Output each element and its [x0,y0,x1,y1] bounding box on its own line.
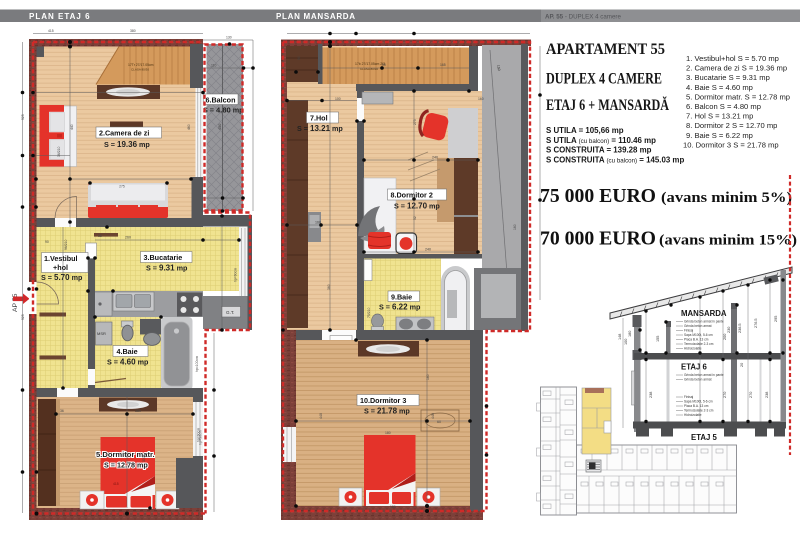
svg-text:52: 52 [413,216,417,220]
svg-text:360: 360 [327,284,331,290]
svg-text:525: 525 [21,314,25,320]
svg-text:415: 415 [48,29,54,33]
svg-text:240: 240 [425,248,431,252]
svg-text:276.5: 276.5 [754,318,758,328]
svg-text:450: 450 [218,124,222,130]
svg-text:9.Baie: 9.Baie [391,293,412,302]
svg-text:Hidroizolatie: Hidroizolatie [684,347,702,351]
svg-text:8. Dormitor 2 S = 12.70 mp: 8. Dormitor 2 S = 12.70 mp [686,121,777,130]
svg-text:Sapa M100t, 5-6 cm: Sapa M100t, 5-6 cm [684,400,713,404]
svg-text:8.Dormitor 2: 8.Dormitor 2 [391,191,433,200]
svg-text:4. Baie S = 4.60 mp: 4. Baie S = 4.60 mp [686,83,753,92]
svg-text:36/210: 36/210 [57,147,61,157]
svg-text:Termoizolatie 2-3 cm: Termoizolatie 2-3 cm [684,409,714,413]
svg-text:70 000 EURO: 70 000 EURO [540,228,656,250]
svg-text:380: 380 [130,29,136,33]
svg-text:S = 12.70 mp: S = 12.70 mp [394,202,440,211]
svg-text:2. Camera de zi S = 19.36 mp: 2. Camera de zi S = 19.36 mp [686,64,787,73]
svg-text:160: 160 [513,224,517,230]
svg-text:S = 4.80 mp: S = 4.80 mp [203,106,244,115]
svg-text:Finisaj: Finisaj [684,329,694,333]
svg-text:270: 270 [749,392,753,398]
svg-text:35: 35 [98,234,102,238]
svg-text:Grinda beton armat: Grinda beton armat [684,324,712,328]
svg-text:10. Dormitor 3 S = 21.78 mp: 10. Dormitor 3 S = 21.78 mp [683,140,779,149]
svg-text:295: 295 [774,316,778,322]
svg-text:75/210: 75/210 [367,308,371,318]
svg-text:230: 230 [727,327,731,333]
svg-text:180: 180 [628,331,632,337]
svg-text:236.5: 236.5 [738,323,742,333]
svg-text:380: 380 [135,409,141,413]
svg-text:440: 440 [319,413,323,419]
svg-text:(avans minim 15%): (avans minim 15%) [659,233,797,249]
svg-text:96/210: 96/210 [64,240,68,250]
svg-text:G.T.: G.T. [226,310,234,315]
svg-text:460: 460 [187,124,191,130]
svg-text:ETAJ 5: ETAJ 5 [691,433,718,442]
svg-text:Termoizolatie 2-3 cm: Termoizolatie 2-3 cm [684,342,714,346]
svg-text:100: 100 [624,339,628,345]
svg-text:Grinda beton armat in pante: Grinda beton armat in pante [684,320,724,324]
svg-text:240: 240 [432,156,438,160]
svg-text:DUPLEX 4 CAMERE: DUPLEX 4 CAMERE [546,71,662,88]
svg-text:Placa B.A. 13 cm: Placa B.A. 13 cm [684,338,709,342]
svg-text:S = 4.60 mp: S = 4.60 mp [107,358,149,367]
svg-text:9. Baie S = 6.22 mp: 9. Baie S = 6.22 mp [686,131,753,140]
svg-text:S UTILA (cu balcon) = 110.46 m: S UTILA (cu balcon) = 110.46 mp [546,136,656,145]
svg-text:6.Balcon: 6.Balcon [206,96,236,105]
svg-text:Hidroizolatie: Hidroizolatie [684,413,702,417]
svg-text:S = 9.31 mp: S = 9.31 mp [146,264,188,273]
svg-text:S CONSTRUITA = 139.28 mp: S CONSTRUITA = 139.28 mp [546,146,652,155]
svg-text:4.Baie: 4.Baie [117,347,138,356]
svg-text:17Tr 27/17.05cm: 17Tr 27/17.05cm [128,63,154,67]
svg-text:17b 27/17.05cm 2/3: 17b 27/17.05cm 2/3 [355,62,385,66]
svg-text:PLAN ETAJ 6: PLAN ETAJ 6 [29,12,91,21]
svg-text:200: 200 [723,334,727,340]
svg-text:5. Dormitor matr. S = 12.78 mp: 5. Dormitor matr. S = 12.78 mp [686,92,790,101]
svg-text:180: 180 [385,431,391,435]
svg-text:S = 6.22 mp: S = 6.22 mp [379,303,421,312]
svg-text:AP. 55 - DUPLEX 4 camere: AP. 55 - DUPLEX 4 camere [545,13,621,20]
svg-text:hp=90cm: hp=90cm [197,428,201,442]
svg-text:75 000 EURO: 75 000 EURO [540,185,656,207]
svg-text:440: 440 [431,413,435,419]
svg-text:275: 275 [413,119,417,125]
svg-text:hp=90cm: hp=90cm [234,268,238,282]
svg-text:+hol: +hol [53,263,68,272]
svg-text:130: 130 [226,36,232,40]
svg-text:S = 13.21 mp: S = 13.21 mp [297,124,343,133]
svg-text:ETAJ 6: ETAJ 6 [681,363,708,372]
svg-text:1.Vestibul: 1.Vestibul [44,254,78,263]
svg-text:238: 238 [649,392,653,398]
svg-text:6. Balcon S = 4.80 mp: 6. Balcon S = 4.80 mp [686,102,761,111]
svg-text:160: 160 [478,97,484,101]
svg-text:Sapa M100t, 5-6 cm: Sapa M100t, 5-6 cm [684,333,713,337]
svg-text:36: 36 [60,409,64,413]
svg-text:3.Bucatarie: 3.Bucatarie [144,253,183,262]
svg-text:(avans minim 5%): (avans minim 5%) [661,190,792,206]
svg-text:S = 19.36 mp: S = 19.36 mp [104,140,150,149]
svg-text:hp=100cm: hp=100cm [195,356,199,372]
svg-text:Finisaj: Finisaj [684,395,694,399]
svg-text:Grinda beton armat: Grinda beton armat [684,378,712,382]
svg-text:155: 155 [656,336,660,342]
svg-text:10.Dormitor 3: 10.Dormitor 3 [360,396,406,405]
svg-text:CLASA 80/30: CLASA 80/30 [131,68,149,72]
svg-text:AP 55: AP 55 [12,293,19,312]
svg-text:S CONSTRUITA (cu balcon) = 145: S CONSTRUITA (cu balcon) = 145.03 mp [546,156,684,165]
svg-text:MANSARDA: MANSARDA [681,309,727,318]
svg-text:90: 90 [297,56,301,60]
svg-text:300: 300 [142,456,146,462]
svg-text:238: 238 [765,392,769,398]
svg-text:20: 20 [740,363,744,367]
svg-text:S = 21.78 mp: S = 21.78 mp [364,407,410,416]
svg-text:270: 270 [723,392,727,398]
svg-text:CLASA 80/30: CLASA 80/30 [360,67,378,71]
svg-text:160: 160 [426,374,430,380]
svg-text:3. Bucatarie S = 9.31 mp: 3. Bucatarie S = 9.31 mp [686,73,770,82]
svg-text:260: 260 [125,236,131,240]
svg-text:APARTAMENT 55: APARTAMENT 55 [546,41,665,58]
svg-text:S = 5.70 mp: S = 5.70 mp [41,273,83,282]
svg-text:Placa B.A. 13 cm: Placa B.A. 13 cm [684,404,709,408]
svg-text:Grinda beton armat in pante: Grinda beton armat in pante [684,373,724,377]
svg-text:180: 180 [390,505,396,509]
svg-text:S UTILA = 105,66 mp: S UTILA = 105,66 mp [546,126,624,135]
svg-text:2.Camera de zi: 2.Camera de zi [99,129,149,138]
svg-text:110: 110 [211,64,217,68]
svg-text:440: 440 [70,124,74,130]
svg-text:100: 100 [335,97,341,101]
svg-text:PLAN MANSARDA: PLAN MANSARDA [276,12,356,21]
svg-text:275: 275 [119,185,125,189]
svg-text:7.Hol: 7.Hol [310,114,328,123]
svg-text:60: 60 [437,420,441,424]
svg-text:7. Hol S = 13.21 mp: 7. Hol S = 13.21 mp [686,112,753,121]
svg-text:MSR: MSR [97,331,106,336]
svg-text:525: 525 [21,114,25,120]
svg-text:1. Vestibul+hol S = 5.70 mp: 1. Vestibul+hol S = 5.70 mp [686,54,779,63]
svg-text:415: 415 [113,482,119,486]
svg-text:ETAJ 6 + MANSARDĂ: ETAJ 6 + MANSARDĂ [546,97,670,114]
svg-text:165: 165 [440,63,446,67]
svg-text:90: 90 [45,240,49,244]
svg-text:148: 148 [618,334,622,340]
